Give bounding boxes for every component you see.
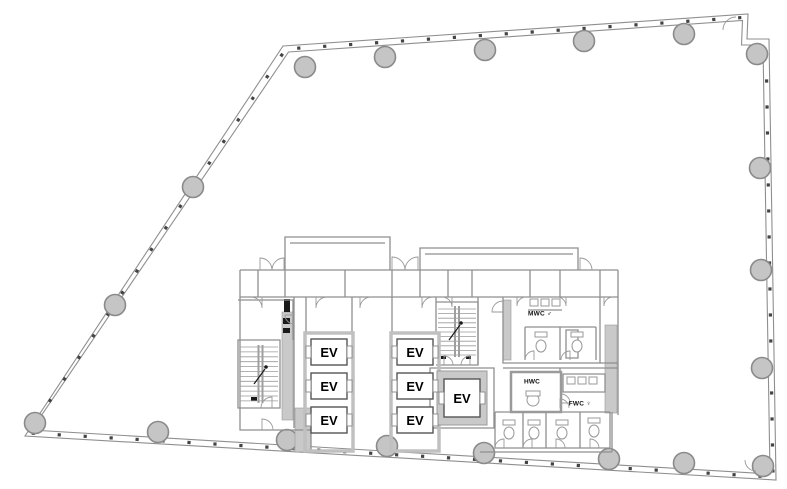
column	[474, 443, 495, 464]
mullion-tick	[629, 467, 632, 470]
door-arcs	[251, 17, 756, 471]
mullion-tick	[738, 16, 741, 19]
mullion-tick	[213, 442, 216, 445]
elevator-rail-left	[306, 380, 311, 392]
mullion-tick	[297, 46, 300, 49]
mullion-tick	[732, 473, 735, 476]
column	[295, 57, 316, 78]
gray-wall	[503, 300, 511, 360]
elevator-rail-left	[392, 380, 397, 392]
column	[674, 24, 695, 45]
mullion-tick	[109, 436, 112, 439]
door-arc	[316, 297, 327, 308]
elevator-rail-right	[480, 392, 485, 404]
door-arc	[495, 439, 504, 448]
toilet-tank	[503, 420, 515, 425]
mullion-tick	[770, 417, 773, 420]
mullion-tick	[660, 21, 663, 24]
column	[752, 358, 773, 379]
mullion-tick	[551, 462, 554, 465]
mullion-tick	[207, 161, 211, 165]
toilet-tank	[526, 391, 540, 396]
mullion-tick	[556, 29, 559, 32]
mullion-tick	[479, 34, 482, 37]
mullion-tick	[222, 139, 226, 143]
door-arc	[525, 351, 534, 360]
door-arc	[492, 301, 503, 312]
column	[674, 453, 695, 474]
elevator-rail-right	[347, 380, 352, 392]
elevator-rail-left	[392, 346, 397, 358]
door-arc	[556, 439, 565, 448]
mullion-tick	[279, 53, 283, 57]
fixture-square	[567, 377, 575, 384]
door-arc	[392, 257, 405, 270]
toilet-bowl	[557, 427, 567, 439]
mullion-tick	[323, 45, 326, 48]
door-arc	[262, 419, 273, 430]
floor-plan: EVEVEVEVEVEVEV MWC ♂HWCFWC ♀	[0, 0, 787, 489]
shaft-mark	[283, 318, 290, 324]
door-arc	[251, 297, 262, 308]
mullion-tick	[767, 183, 770, 186]
mullion-tick	[608, 25, 611, 28]
toilet-bowl	[536, 340, 546, 352]
elevator-rail-right	[433, 346, 438, 358]
mullion-tick	[239, 444, 242, 447]
mullion-tick	[577, 464, 580, 467]
elevator-rail-left	[392, 414, 397, 426]
mullion-tick	[349, 43, 352, 46]
toilet-tank	[556, 420, 568, 425]
core-wall	[306, 297, 352, 333]
toilet-tank	[588, 418, 600, 423]
mullion-tick	[427, 37, 430, 40]
mullion-tick	[265, 445, 268, 448]
fixture-square	[530, 299, 538, 306]
mullion-tick	[712, 18, 715, 21]
door-arc	[422, 297, 433, 308]
door-arc	[580, 258, 592, 270]
column	[105, 295, 126, 316]
mullion-tick	[768, 287, 771, 290]
mullion-tick	[453, 36, 456, 39]
mullion-tick	[769, 339, 772, 342]
column	[25, 413, 46, 434]
elevator-label: EV	[406, 379, 424, 394]
mullion-tick	[765, 105, 768, 108]
column	[148, 422, 169, 443]
elevator-rail-left	[306, 414, 311, 426]
elevator-rail-right	[347, 414, 352, 426]
mullion-tick	[766, 131, 769, 134]
column	[751, 260, 772, 281]
shaft-mark	[283, 328, 290, 333]
toilet-tank	[535, 332, 547, 337]
elevator-rail-right	[347, 346, 352, 358]
stair-arrow-head	[459, 321, 463, 325]
door-arc	[272, 258, 284, 270]
elevator-label: EV	[406, 413, 424, 428]
column	[574, 31, 595, 52]
door-arc	[523, 439, 532, 448]
gray-wall	[605, 325, 617, 413]
elevator-label: EV	[320, 345, 338, 360]
door-arc	[590, 439, 599, 448]
room-label: FWC ♀	[569, 401, 591, 408]
column	[475, 40, 496, 61]
elevator-rail-right	[433, 380, 438, 392]
column	[377, 436, 398, 457]
mullion-tick	[531, 30, 534, 33]
toilet-tank	[571, 332, 583, 337]
door-arc	[723, 17, 736, 30]
mullion-tick	[58, 433, 61, 436]
mullion-tick	[767, 209, 770, 212]
elevator-label: EV	[453, 391, 471, 406]
room-label: HWC	[524, 379, 540, 386]
mullion-tick	[499, 459, 502, 462]
mullion-tick	[770, 391, 773, 394]
mullion-tick	[525, 461, 528, 464]
fixture-square	[578, 377, 586, 384]
mullion-tick	[634, 23, 637, 26]
toilet-bowl	[504, 427, 514, 439]
floor-plan-svg: EVEVEVEVEVEVEV MWC ♂HWCFWC ♀	[0, 0, 787, 489]
room-label: MWC ♂	[528, 311, 552, 318]
toilet-bowl	[572, 340, 582, 352]
mullion-tick	[706, 471, 709, 474]
mullion-tick	[187, 441, 190, 444]
mullion-tick	[769, 313, 772, 316]
toilet-bowl	[589, 425, 599, 437]
mullion-tick	[421, 455, 424, 458]
shaft-mark	[251, 397, 257, 401]
mullion-tick	[771, 443, 774, 446]
toilet-tank	[528, 420, 540, 425]
core-wall	[392, 297, 436, 333]
elevator-label: EV	[320, 379, 338, 394]
door-arc	[517, 297, 526, 306]
mullion-tick	[84, 435, 87, 438]
door-arc	[260, 258, 272, 270]
door-arc	[405, 257, 418, 270]
mullion-tick	[62, 377, 66, 381]
core-wall	[420, 248, 578, 270]
mullion-tick	[655, 468, 658, 471]
core-wall	[503, 297, 600, 363]
mullion-tick	[447, 456, 450, 459]
mullion-tick	[582, 27, 585, 30]
mullion-tick	[505, 32, 508, 35]
column	[750, 158, 771, 179]
elevator-rail-left	[306, 346, 311, 358]
shaft-mark	[284, 299, 290, 312]
toilet-bowl	[529, 427, 539, 439]
elevator-label: EV	[320, 413, 338, 428]
column	[753, 456, 774, 477]
mullion-tick	[265, 74, 269, 78]
door-arc	[604, 297, 613, 306]
door-arc	[360, 297, 371, 308]
elevator-rail-right	[433, 414, 438, 426]
column	[375, 47, 396, 68]
fixture-square	[541, 299, 549, 306]
column	[747, 44, 768, 65]
elevator-label: EV	[406, 345, 424, 360]
mullion-tick	[686, 20, 689, 23]
restroom-fixtures	[503, 299, 600, 439]
column	[277, 430, 298, 451]
mullion-tick	[48, 398, 52, 402]
mullion-tick	[395, 453, 398, 456]
outline-inner	[32, 21, 771, 475]
mullion-tick	[375, 41, 378, 44]
mullion-tick	[236, 118, 240, 122]
mullion-tick	[251, 96, 255, 100]
fixture-square	[552, 299, 560, 306]
mullion-tick	[369, 452, 372, 455]
mullion-tick	[401, 39, 404, 42]
elevator-rail-left	[439, 392, 444, 404]
core-wall	[436, 302, 478, 365]
core-wall	[285, 237, 390, 270]
fixture-square	[589, 377, 597, 384]
mullion-tick	[768, 235, 771, 238]
mullion-tick	[135, 438, 138, 441]
column	[183, 177, 204, 198]
stair-arrow-head	[264, 365, 268, 369]
mullion-tick	[765, 79, 768, 82]
